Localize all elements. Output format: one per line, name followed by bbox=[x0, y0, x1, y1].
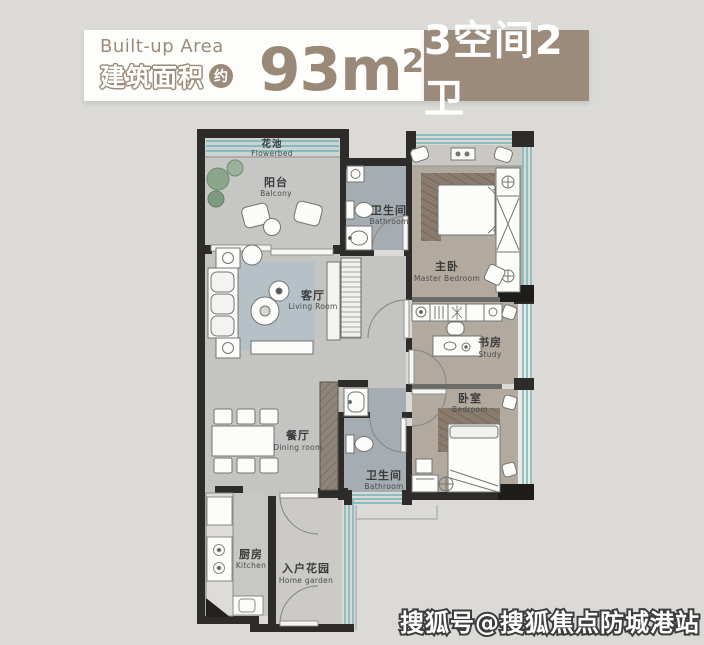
svg-text:Flowerbed: Flowerbed bbox=[251, 149, 293, 158]
desk-icon bbox=[433, 336, 481, 356]
area-number: 93 bbox=[259, 35, 341, 105]
label-bathroom-lower: 卫生间 Bathroom bbox=[364, 468, 403, 491]
area-value: 93m2 bbox=[259, 31, 424, 100]
balcony-table-icon bbox=[451, 148, 475, 160]
toilet-icon bbox=[346, 435, 354, 453]
svg-text:餐厅: 餐厅 bbox=[285, 428, 310, 442]
svg-text:厨房: 厨房 bbox=[239, 547, 263, 561]
plant-icon bbox=[208, 191, 224, 207]
room-home-garden-floor bbox=[276, 496, 342, 624]
built-up-area-en: Built-up Area bbox=[100, 37, 251, 57]
pillow-icon bbox=[450, 426, 498, 438]
area-title: Built-up Area 建筑面积 约 bbox=[100, 37, 251, 94]
dining-table-icon bbox=[212, 426, 274, 456]
label-balcony: 阳台 Balcony bbox=[260, 175, 292, 198]
chair-icon bbox=[237, 409, 255, 424]
floorplan-page: Built-up Area 建筑面积 约 93m2 3空间2卫 bbox=[0, 0, 704, 645]
sliding-panel-icon bbox=[327, 262, 340, 340]
svg-text:客厅: 客厅 bbox=[300, 288, 325, 302]
svg-text:卧室: 卧室 bbox=[458, 391, 482, 405]
decor-icon bbox=[502, 394, 518, 410]
washer-icon bbox=[347, 166, 364, 182]
balcony-slider-panel bbox=[271, 249, 333, 255]
bathroom-lower-window-icon bbox=[352, 495, 404, 503]
bay-window-strip bbox=[518, 303, 532, 492]
svg-text:Balcony: Balcony bbox=[260, 189, 292, 198]
chair-icon bbox=[214, 458, 232, 473]
svg-text:Bedroom: Bedroom bbox=[452, 405, 488, 414]
svg-text:入户花园: 入户花园 bbox=[282, 561, 330, 575]
tall-cabinet-icon bbox=[320, 382, 338, 490]
chair-icon bbox=[237, 458, 255, 473]
header: Built-up Area 建筑面积 约 93m2 3空间2卫 bbox=[84, 30, 589, 101]
area-box: Built-up Area 建筑面积 约 93m2 bbox=[84, 30, 424, 101]
desk-chair-icon bbox=[447, 322, 464, 335]
side-table-icon bbox=[216, 338, 240, 358]
svg-text:主卧: 主卧 bbox=[435, 259, 459, 273]
tv-bench-icon bbox=[251, 341, 313, 354]
layout-badge: 3空间2卫 bbox=[424, 30, 589, 101]
decor-icon bbox=[501, 462, 517, 478]
stove-icon bbox=[207, 537, 232, 581]
area-unit: m bbox=[340, 35, 402, 105]
plant-pot-icon bbox=[242, 245, 262, 265]
svg-text:Study: Study bbox=[478, 350, 501, 359]
area-exponent: 2 bbox=[402, 42, 424, 80]
built-up-area-cn: 建筑面积 bbox=[100, 58, 204, 94]
watermark: 搜狐号@搜狐焦点防城港站 bbox=[400, 609, 700, 637]
side-table-icon bbox=[264, 219, 281, 236]
fridge-icon bbox=[207, 497, 232, 525]
svg-text:Living Room: Living Room bbox=[288, 302, 337, 311]
chair-icon bbox=[260, 458, 278, 473]
side-table-icon bbox=[216, 248, 240, 268]
label-kitchen: 厨房 Kitchen bbox=[236, 547, 266, 570]
plant-icon bbox=[227, 160, 243, 176]
bedroom-desk-icon bbox=[412, 475, 438, 492]
chair-icon bbox=[214, 409, 232, 424]
shelf-cabinet-icon bbox=[341, 258, 361, 338]
master-top-window-icon bbox=[410, 135, 526, 143]
svg-text:卫生间: 卫生间 bbox=[366, 468, 402, 482]
toilet-icon bbox=[346, 201, 354, 219]
label-home-garden: 入户花园 Home garden bbox=[279, 561, 333, 585]
svg-text:Kitchen: Kitchen bbox=[236, 561, 266, 570]
nightstand-icon bbox=[416, 459, 432, 473]
approx-badge: 约 bbox=[209, 64, 233, 88]
svg-text:书房: 书房 bbox=[478, 335, 502, 349]
svg-text:Bathroom: Bathroom bbox=[369, 217, 408, 226]
plant-icon bbox=[207, 168, 229, 190]
svg-text:Bathroom: Bathroom bbox=[364, 482, 403, 491]
chair-icon bbox=[260, 409, 278, 424]
svg-text:Dining room: Dining room bbox=[273, 443, 322, 452]
garden-window-icon bbox=[345, 500, 353, 628]
svg-text:Master Bedroom: Master Bedroom bbox=[414, 274, 480, 283]
svg-text:卫生间: 卫生间 bbox=[371, 203, 407, 217]
svg-text:阳台: 阳台 bbox=[264, 175, 288, 189]
label-bathroom-upper: 卫生间 Bathroom bbox=[369, 203, 408, 226]
svg-text:Home garden: Home garden bbox=[279, 576, 333, 585]
bed-icon bbox=[438, 185, 495, 235]
label-study: 书房 Study bbox=[478, 335, 502, 359]
toilet-icon bbox=[355, 437, 373, 452]
